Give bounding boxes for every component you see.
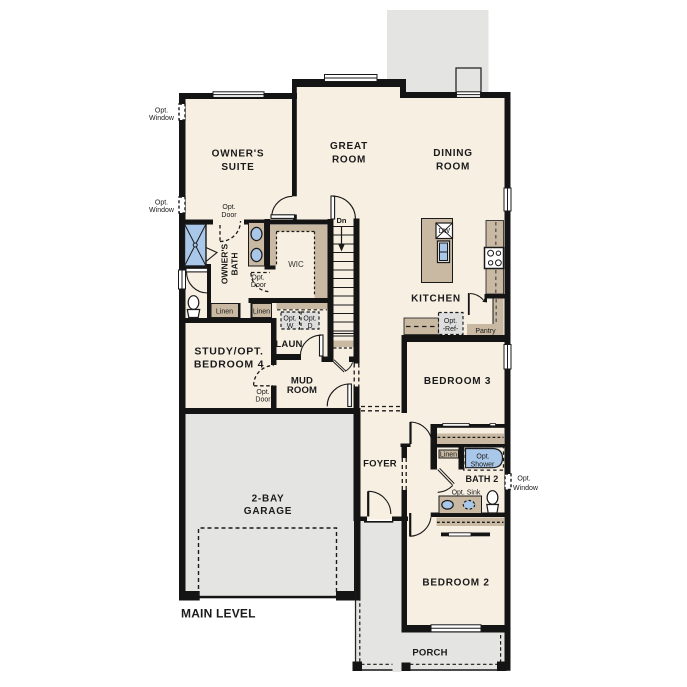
svg-text:Dn: Dn — [337, 216, 347, 225]
svg-text:Door: Door — [251, 282, 267, 289]
svg-text:Opt. Sink: Opt. Sink — [452, 490, 481, 497]
svg-text:Linen: Linen — [253, 309, 270, 316]
svg-text:Opt.: Opt. — [283, 316, 296, 323]
svg-text:Opt.: Opt. — [476, 454, 489, 461]
svg-text:BATH: BATH — [230, 253, 240, 276]
svg-text:Door: Door — [255, 397, 271, 404]
svg-text:PORCH: PORCH — [412, 648, 447, 659]
svg-text:Window: Window — [513, 485, 539, 492]
svg-text:Door: Door — [221, 212, 237, 219]
svg-text:Opt.: Opt. — [222, 204, 235, 211]
svg-text:Linen: Linen — [440, 452, 457, 459]
svg-text:Shower: Shower — [471, 462, 495, 469]
svg-text:BATH 2: BATH 2 — [465, 474, 498, 484]
svg-text:Linen: Linen — [216, 309, 233, 316]
svg-text:OWNER'S: OWNER'S — [220, 244, 230, 285]
svg-text:Window: Window — [149, 207, 175, 214]
svg-text:Opt.: Opt. — [517, 476, 530, 483]
svg-text:Opt.: Opt. — [251, 275, 264, 282]
svg-text:ROOM: ROOM — [332, 155, 366, 166]
svg-text:SUITE: SUITE — [221, 162, 254, 173]
svg-text:Opt.: Opt. — [155, 108, 168, 115]
svg-text:Opt.: Opt. — [155, 200, 168, 207]
svg-text:ROOM: ROOM — [287, 385, 317, 396]
svg-text:ROOM: ROOM — [436, 162, 470, 173]
svg-text:BEDROOM 4: BEDROOM 4 — [194, 359, 264, 371]
svg-text:Window: Window — [149, 115, 175, 122]
svg-text:DINING: DINING — [433, 148, 473, 159]
svg-text:DW: DW — [438, 228, 450, 235]
svg-text:2-BAY: 2-BAY — [252, 494, 285, 505]
svg-text:GREAT: GREAT — [330, 141, 368, 152]
svg-text:W: W — [287, 323, 294, 330]
svg-text:Pantry: Pantry — [475, 328, 496, 335]
svg-text:OWNER'S: OWNER'S — [212, 149, 265, 160]
svg-text:MAIN LEVEL: MAIN LEVEL — [181, 607, 256, 621]
svg-text:BEDROOM 3: BEDROOM 3 — [424, 376, 491, 387]
svg-text:STUDY/OPT.: STUDY/OPT. — [194, 346, 263, 358]
svg-text:GARAGE: GARAGE — [244, 506, 292, 517]
svg-text:FOYER: FOYER — [363, 459, 397, 470]
svg-text:KITCHEN: KITCHEN — [411, 294, 461, 305]
svg-text:-Ref-: -Ref- — [443, 326, 459, 333]
svg-text:D: D — [307, 323, 312, 330]
svg-text:Opt.: Opt. — [256, 389, 269, 396]
svg-text:WIC: WIC — [288, 260, 304, 269]
svg-text:Opt.: Opt. — [444, 318, 457, 325]
svg-text:Opt.: Opt. — [303, 316, 316, 323]
svg-text:LAUN: LAUN — [275, 339, 302, 350]
svg-text:BEDROOM 2: BEDROOM 2 — [422, 578, 489, 589]
